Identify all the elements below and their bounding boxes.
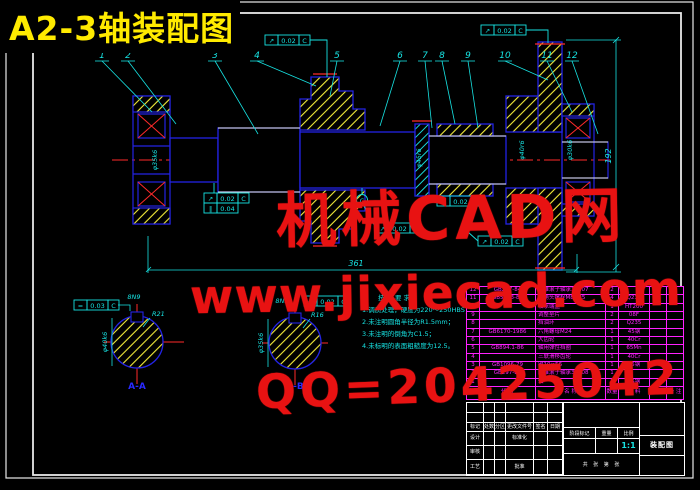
fcf-symbol: ∥ [209, 205, 212, 213]
bom-cell: Q235 [618, 319, 649, 327]
part-label: 5 [334, 51, 340, 61]
bom-cell: 1 [605, 328, 618, 336]
bom-cell: 5 [466, 344, 479, 352]
bom-cell: 45钢 [618, 328, 649, 336]
tblock-cell-approve: 批准 [506, 460, 534, 475]
title-block-middle: 阶段标记 重量 比例 1:1 共 张 第 张 [563, 403, 640, 475]
weight-value [596, 438, 618, 453]
tblock-cell [484, 413, 495, 423]
fcf-symbol: ↗ [485, 27, 490, 35]
tblock-cell [548, 413, 563, 423]
doc-name: 装配图 [640, 435, 684, 456]
tblock-cell [495, 446, 506, 460]
tblock-cell [495, 432, 506, 446]
dim-left-journal: φ35k6 [151, 150, 159, 170]
dim-collar: φ45r6 [415, 148, 423, 167]
bom-cell: 大齿轮 [535, 336, 605, 344]
tblock-cell-design: 设计 [467, 432, 484, 446]
bom-cell: 8 [466, 319, 479, 327]
part-label: 4 [254, 51, 260, 61]
fcf-datum: C [518, 27, 523, 35]
section-b-dia: φ35k6 [257, 333, 265, 353]
part-label: 8 [439, 51, 445, 61]
drawing-sheet: φ35k6 φ45r6 φ40r6 φ30k6 361 192 1 2 3 [0, 0, 700, 490]
section-a-label: A-A [128, 382, 146, 392]
part-label: 12 [566, 51, 578, 61]
fcf-top-right: ↗ 0.02 C [481, 25, 548, 43]
fcf-datum: C [111, 302, 116, 310]
fcf-top-left: ↗ 0.02 C [265, 35, 327, 77]
tblock-cell-check: 审核 [467, 446, 484, 460]
section-a-dia: φ40k6 [101, 332, 109, 352]
dim-gear-od-text: 192 [604, 148, 613, 163]
fcf-value: 0.03 [90, 302, 104, 310]
part-label: 10 [499, 51, 511, 61]
tblock-cell [484, 460, 495, 475]
tblock-cell: 更改文件号 [506, 423, 534, 432]
fcf-value: 0.04 [220, 205, 234, 213]
fcf-value: 0.02 [281, 37, 295, 45]
sheet-count: 共 张 第 张 [564, 454, 640, 475]
section-a-key: 8N9 [127, 293, 140, 301]
bom-cell: 1 [605, 344, 618, 352]
title-block-revision-grid: 标记处数分区更改文件号签名日期 设计标准化 审核 工艺批准 [467, 403, 563, 475]
bom-cell: 2 [605, 319, 618, 327]
tblock-cell: 处数 [484, 423, 495, 432]
bom-cell [479, 319, 535, 327]
note-line: 3.未注明的倒角为C1.5； [362, 328, 464, 340]
note-line: 4.未标明的表面粗糙度为12.5。 [362, 340, 464, 352]
bom-cell [649, 336, 666, 344]
bom-cell [666, 336, 683, 344]
scale-value: 1:1 [618, 438, 640, 453]
part-label: 7 [422, 51, 428, 61]
bom-cell [666, 328, 683, 336]
tblock-cell: 签名 [534, 423, 548, 432]
tblock-cell [548, 446, 563, 460]
tblock-cell [495, 460, 506, 475]
drawing-title: A2-3轴装配图 [5, 0, 240, 53]
tblock-cell [534, 460, 548, 475]
tblock-cell [534, 432, 548, 446]
part-label: 6 [397, 51, 403, 61]
bom-cell: GB6170-1986 [479, 328, 535, 336]
watermark-url: www.jixiecad.com [190, 262, 683, 326]
bom-cell [649, 319, 666, 327]
bom-cell: 6 [466, 336, 479, 344]
watermark-site-name: 机械CAD网 [275, 167, 627, 260]
bom-cell [479, 336, 535, 344]
tblock-cell [534, 413, 548, 423]
part-label: 11 [541, 51, 552, 61]
stage-label: 阶段标记 [564, 428, 596, 438]
stage-boxes [564, 438, 596, 453]
bom-cell [649, 328, 666, 336]
section-a-radius: R21 [152, 310, 165, 318]
tblock-cell [548, 460, 563, 475]
bom-cell: GB894.1-86 [479, 344, 535, 352]
tblock-cell [484, 432, 495, 446]
scale-label: 比例 [618, 428, 640, 438]
bom-cell: 40Cr [618, 336, 649, 344]
tblock-cell [506, 446, 534, 460]
fcf-value: 0.02 [220, 195, 234, 203]
weight-label: 重量 [596, 428, 618, 438]
dim-right-journal: φ30k6 [566, 140, 574, 160]
fcf-value: 0.02 [497, 27, 511, 35]
fcf-datum: C [241, 195, 246, 203]
bom-cell: 轴用弹性挡圈 [535, 344, 605, 352]
fcf-symbol: ↗ [208, 195, 213, 203]
tblock-cell [467, 413, 484, 423]
bom-cell [666, 319, 683, 327]
tblock-cell [506, 413, 534, 423]
tblock-cell: 标记 [467, 423, 484, 432]
bom-cell: 1 [605, 336, 618, 344]
fcf-symbol: = [78, 302, 83, 310]
title-block-right: 装配图 [639, 403, 684, 475]
bom-cell: 挡油环 [535, 319, 605, 327]
tblock-cell [484, 446, 495, 460]
tblock-cell-std: 标准化 [506, 432, 534, 446]
part-label: 9 [465, 51, 471, 61]
bom-cell: 六角螺母M24 [535, 328, 605, 336]
title-block: 标记处数分区更改文件号签名日期 设计标准化 审核 工艺批准 阶段标记 重量 比例… [466, 402, 685, 476]
tblock-cell: 日期 [548, 423, 563, 432]
drawing-number-box [640, 403, 684, 436]
tblock-cell [548, 432, 563, 446]
bom-cell: 7 [466, 328, 479, 336]
fcf-datum: C [302, 37, 307, 45]
tblock-cell-process: 工艺 [467, 460, 484, 475]
fcf-symbol: ↗ [269, 37, 274, 45]
section-a: = 0.03 C φ40k6 8N9 R21 A-A [74, 293, 184, 392]
dim-hub: φ40r6 [518, 140, 526, 159]
tblock-cell [534, 446, 548, 460]
tblock-cell: 分区 [495, 423, 506, 432]
tblock-cell [495, 413, 506, 423]
